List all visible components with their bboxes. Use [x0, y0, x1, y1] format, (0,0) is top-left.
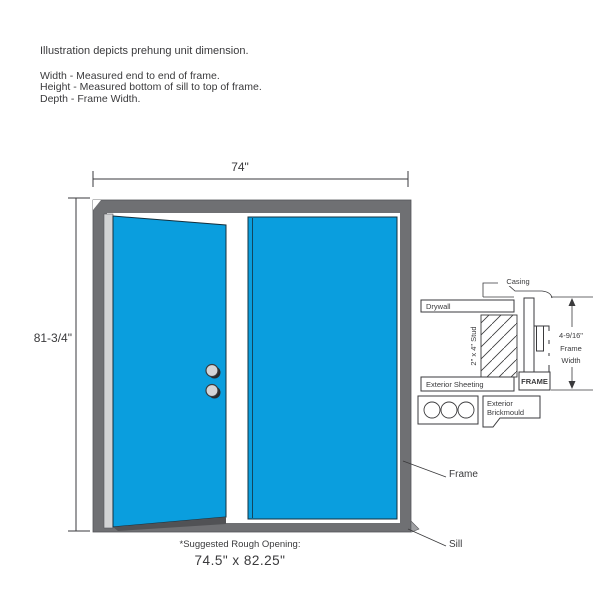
brickmould-label-line2: Brickmould: [487, 408, 524, 417]
deadbolt-knob: [206, 365, 218, 377]
product-illustration: Illustration depicts prehung unit dimens…: [0, 0, 600, 600]
brickmould-profile: [418, 396, 478, 424]
frame-width-label-line2: Width: [548, 356, 594, 365]
stud-label: 2" x 4" Stud: [469, 316, 479, 376]
brickmould-label-line1: Exterior: [487, 399, 524, 408]
frame-callout-label: Frame: [449, 469, 478, 480]
intro-line-4: Depth - Frame Width.: [40, 94, 262, 106]
right-door: [248, 217, 397, 519]
intro-text: Illustration depicts prehung unit dimens…: [40, 46, 262, 105]
door-knob: [206, 385, 218, 397]
brickmould-label: Exterior Brickmould: [487, 399, 524, 417]
stud-box: [481, 315, 517, 377]
width-dimension-label: 74": [220, 160, 260, 174]
frame-profile-label: FRAME: [519, 377, 550, 386]
sill-leader-line: [408, 529, 446, 546]
frame-width-label-line1: Frame: [548, 344, 594, 353]
door-hinge-edge: [104, 214, 113, 528]
sill-callout-label: Sill: [449, 539, 462, 550]
sill-horn: [411, 521, 419, 532]
drywall-label: Drywall: [426, 302, 451, 311]
height-dimension-label: 81-3/4": [26, 331, 72, 345]
intro-line-3: Height - Measured bottom of sill to top …: [40, 82, 262, 94]
height-dimension-lines: [68, 198, 90, 531]
sheeting-label: Exterior Sheeting: [426, 380, 484, 389]
frame-width-dimension-label: 4-9/16": [548, 331, 594, 340]
intro-line-1: Illustration depicts prehung unit dimens…: [40, 46, 262, 58]
rough-opening-label: *Suggested Rough Opening:: [140, 539, 340, 550]
rough-opening-value: 74.5" x 82.25": [140, 553, 340, 568]
casing-label: Casing: [498, 277, 538, 286]
